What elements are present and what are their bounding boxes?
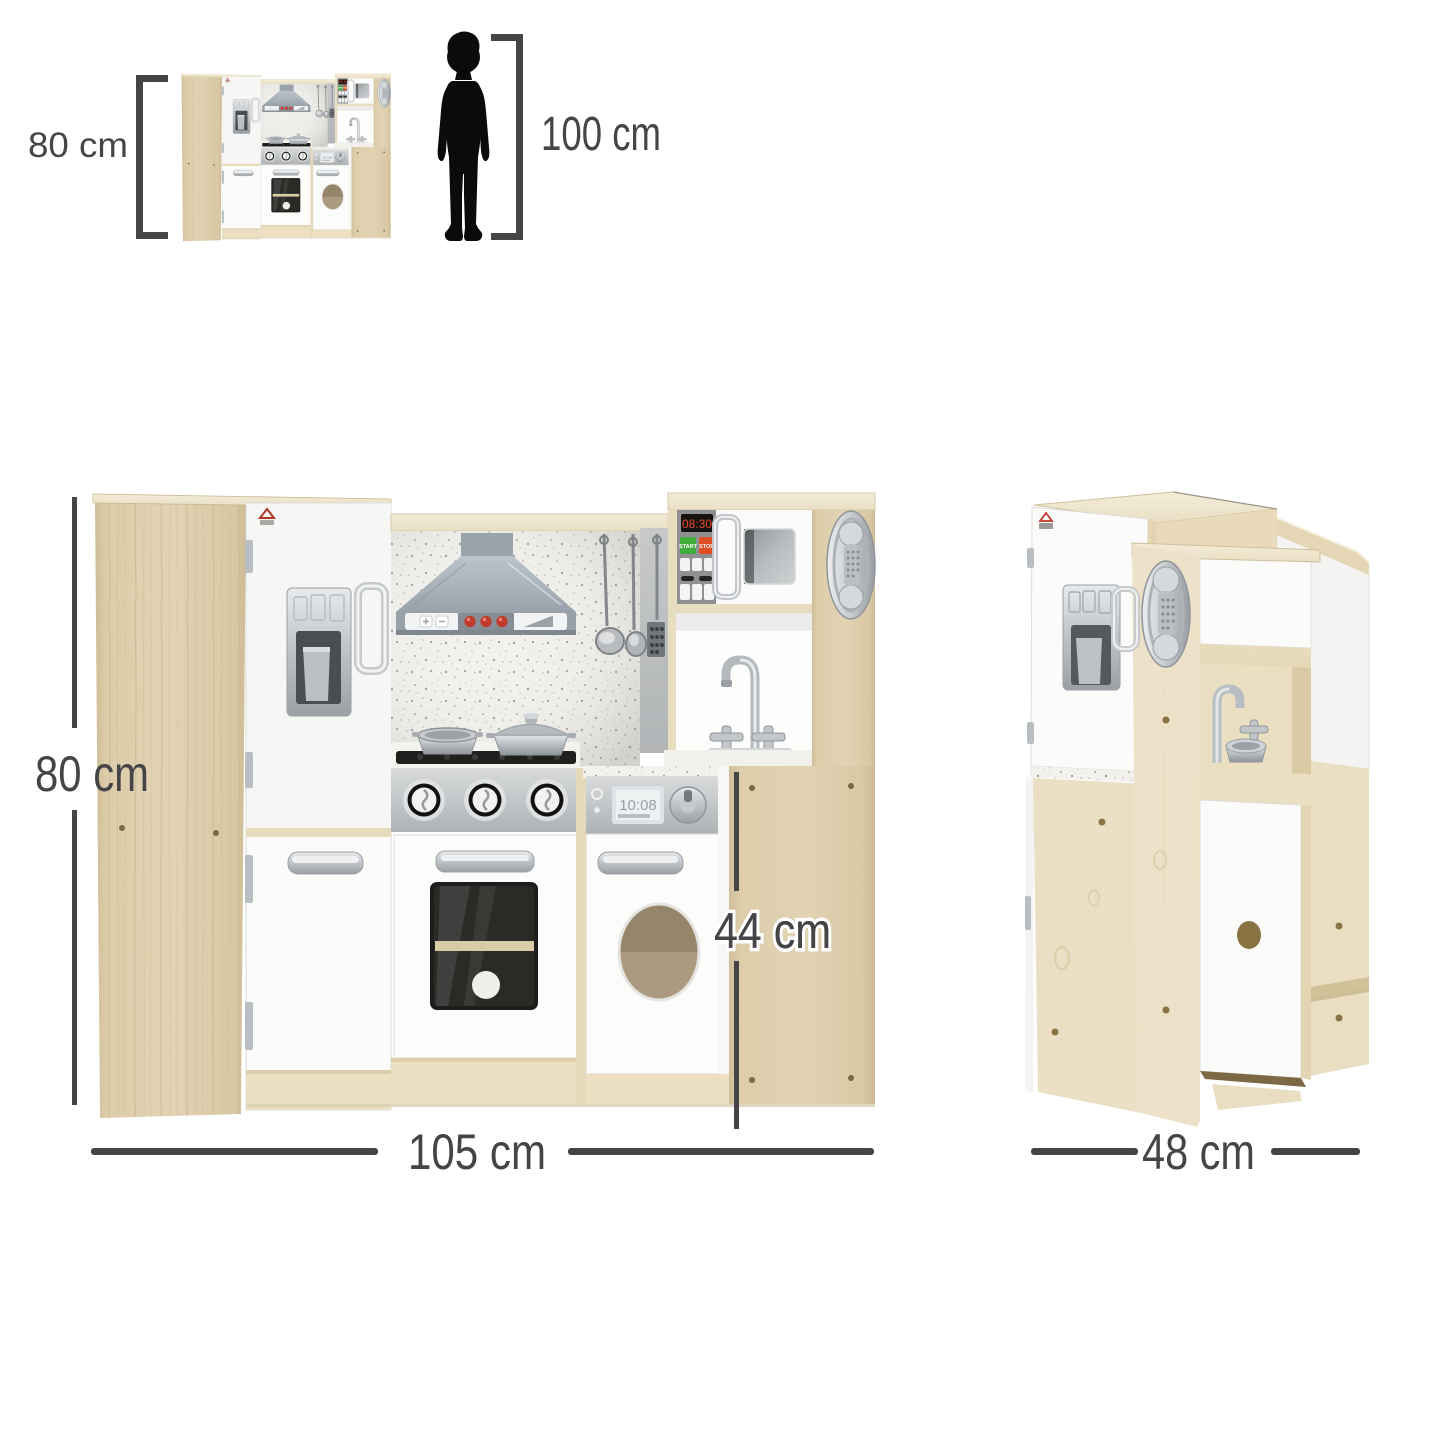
- svg-text:START: START: [679, 544, 698, 550]
- svg-text:08:30: 08:30: [682, 517, 712, 531]
- svg-text:48 cm: 48 cm: [1142, 1124, 1255, 1180]
- svg-text:10:08: 10:08: [619, 797, 657, 814]
- svg-text:44 cm: 44 cm: [714, 903, 831, 959]
- svg-text:STOP: STOP: [699, 544, 714, 550]
- svg-text:100 cm: 100 cm: [541, 108, 661, 161]
- svg-text:105 cm: 105 cm: [408, 1124, 546, 1180]
- svg-text:80 cm: 80 cm: [35, 746, 149, 802]
- svg-text:80 cm: 80 cm: [28, 126, 128, 165]
